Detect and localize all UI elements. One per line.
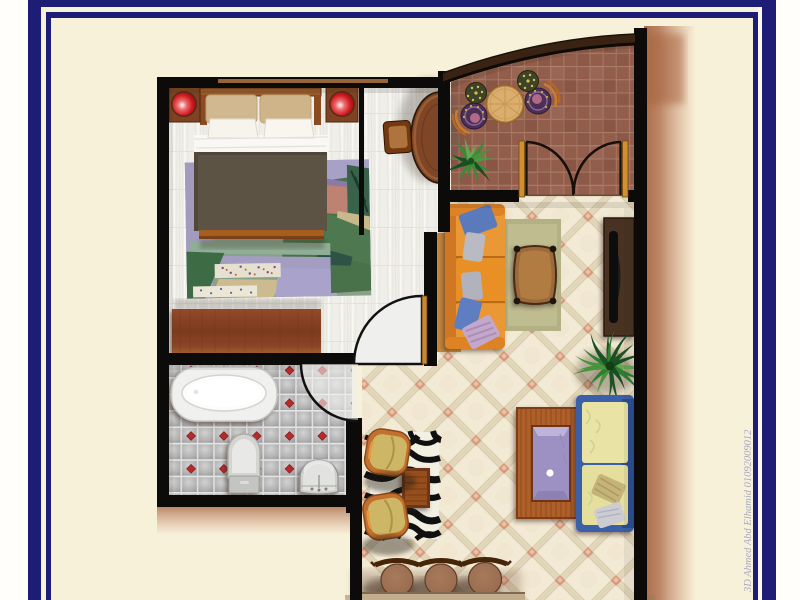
svg-text:3D Ahmed Abd Elhamid 010920090: 3D Ahmed Abd Elhamid 01092009012	[743, 429, 754, 593]
